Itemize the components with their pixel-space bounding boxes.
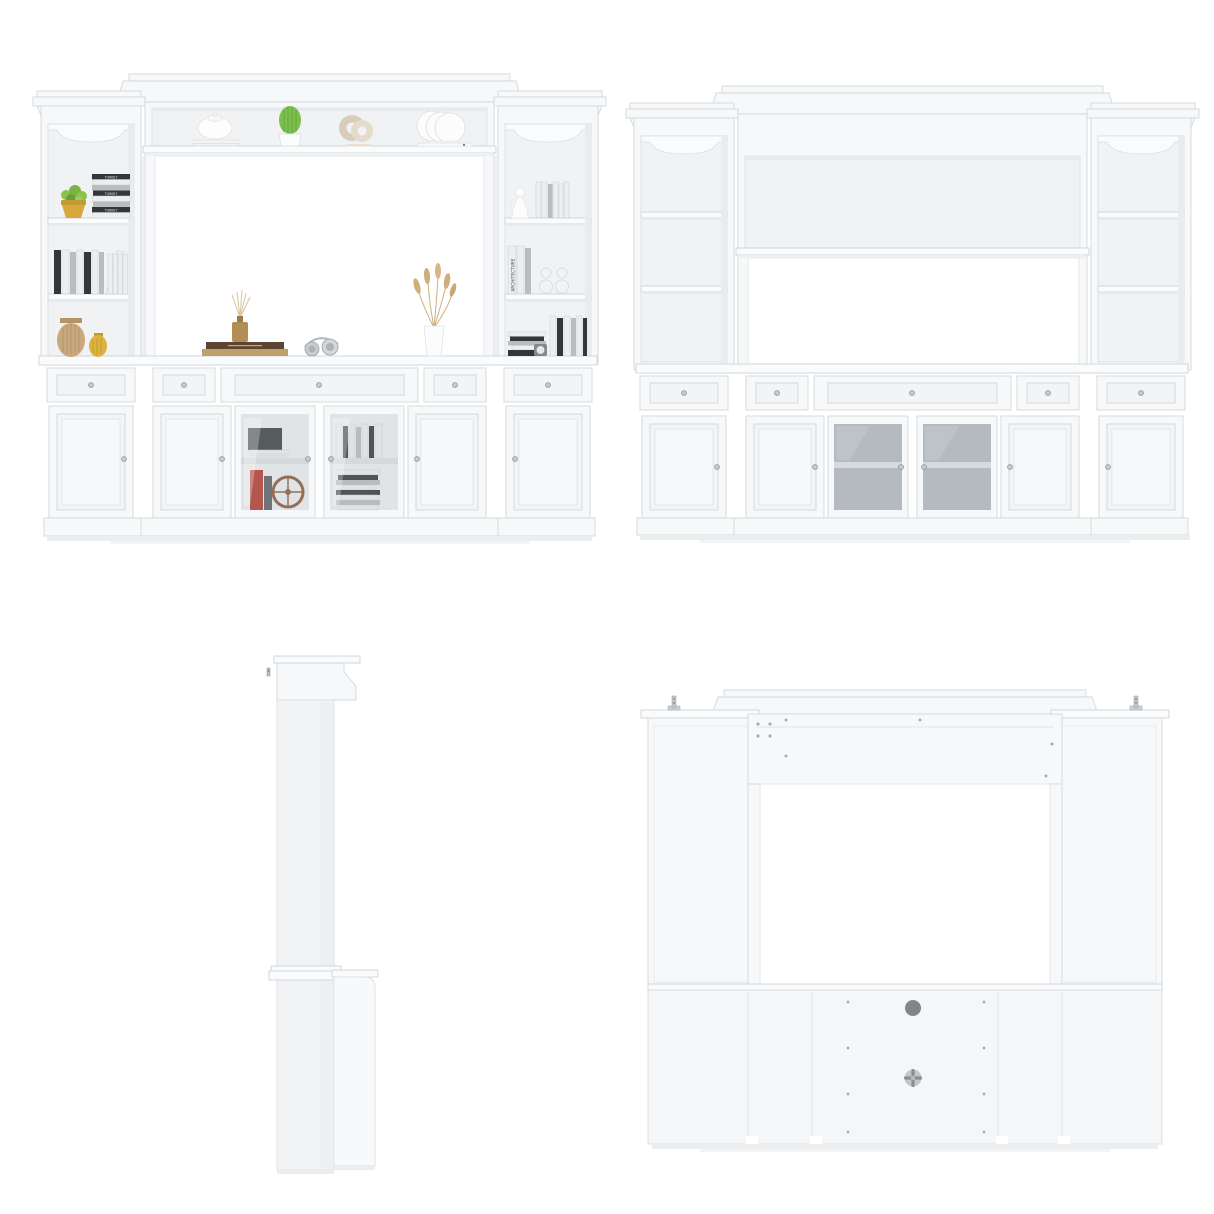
knob (910, 391, 915, 396)
drawer (504, 368, 592, 402)
drawer (814, 376, 1011, 410)
base-console (39, 356, 597, 544)
knob (182, 383, 187, 388)
knob (546, 383, 551, 388)
bridge-and-tv-opening (736, 114, 1089, 366)
drawer (153, 368, 215, 402)
bridge-crown (117, 74, 522, 102)
knob (1008, 465, 1013, 470)
white-vase (424, 326, 444, 356)
drawer (47, 368, 135, 402)
left-tower (626, 103, 738, 370)
cabinet-door (642, 416, 726, 518)
glass-door-right (324, 406, 404, 518)
cabinet-door (1001, 416, 1079, 518)
anti-tip-bracket (1130, 696, 1142, 710)
drawer (746, 376, 808, 410)
drawer (221, 368, 418, 402)
bridge-crown (710, 86, 1115, 114)
knob (415, 457, 420, 462)
gold-vase (89, 335, 107, 357)
glass-door-left (828, 416, 908, 518)
cabinet-door (49, 406, 133, 518)
decor-standing-books-left (54, 250, 128, 294)
cabinet-door (746, 416, 824, 518)
knob (122, 457, 127, 462)
mid-cornice-lip (271, 966, 341, 971)
collage-svg: TURKEY TURKEY TURKEY (0, 0, 1214, 1214)
drawer (424, 368, 486, 402)
knob (682, 391, 687, 396)
view-back (641, 690, 1169, 1152)
svg-text:TURKEY: TURKEY (104, 175, 118, 179)
knob (317, 383, 322, 388)
right-tower-back (1051, 696, 1169, 990)
view-side-profile (267, 656, 378, 1174)
decor-turkey-book-stack: TURKEY TURKEY TURKEY (92, 174, 130, 218)
knob (813, 465, 818, 470)
crown-profile (277, 663, 356, 700)
base-cabinet-profile (332, 970, 378, 1166)
knob (513, 457, 518, 462)
cabinet-door (1099, 416, 1183, 518)
cactus (279, 106, 301, 134)
plinth-right (1091, 518, 1188, 535)
plinth-left (44, 518, 141, 536)
white-pot (279, 134, 301, 146)
console-back (648, 984, 1162, 1152)
knob (1139, 391, 1144, 396)
bridge-side-strip (748, 784, 760, 990)
tv-opening (748, 258, 1079, 366)
knob (220, 457, 225, 462)
knob (899, 465, 904, 470)
right-tower (1087, 103, 1199, 370)
reed-diffuser-bottle (232, 322, 248, 342)
bridge-back-panel (748, 714, 1062, 784)
knob (715, 465, 720, 470)
cabinet-door (153, 406, 231, 518)
wall-anchor-hook (267, 668, 270, 676)
knob (453, 383, 458, 388)
drawer (640, 376, 728, 410)
bridge-side-strip (1050, 784, 1062, 990)
knob (329, 457, 334, 462)
left-tower-back (641, 696, 759, 990)
svg-text:TURKEY: TURKEY (104, 208, 118, 212)
svg-text:TURKEY: TURKEY (104, 192, 118, 196)
glass-door-left (235, 406, 315, 518)
tv-opening-back (760, 784, 1050, 990)
cabinet-door (408, 406, 486, 518)
product-collage: TURKEY TURKEY TURKEY (0, 0, 1214, 1214)
bridge-crown-back (712, 690, 1098, 714)
cabinet-door (506, 406, 590, 518)
plinth-left (637, 518, 734, 535)
knob (1106, 465, 1111, 470)
base-console (636, 364, 1190, 543)
decor-angel-figurine (510, 182, 569, 218)
cable-hole (905, 1000, 921, 1016)
knob (89, 383, 94, 388)
left-tower (33, 91, 145, 364)
drawer (1097, 376, 1185, 410)
view-front-plain (626, 86, 1199, 543)
top-board (274, 656, 360, 663)
knob (922, 465, 927, 470)
knob (1046, 391, 1051, 396)
plinth-center (733, 518, 1092, 535)
svg-text:ARCHITECTURE: ARCHITECTURE (511, 258, 516, 291)
drawer (1017, 376, 1079, 410)
glass-door-right (917, 416, 997, 518)
decor-cactus-pot (279, 106, 301, 146)
anti-tip-bracket (668, 696, 680, 710)
tan-book (202, 349, 288, 356)
gold-pot (62, 205, 85, 218)
plinth-right (498, 518, 595, 536)
plinth-center (140, 518, 499, 536)
view-front-styled: TURKEY TURKEY TURKEY (33, 74, 606, 544)
knob (306, 457, 311, 462)
knob (775, 391, 780, 396)
side-panel-shading (320, 702, 333, 1168)
